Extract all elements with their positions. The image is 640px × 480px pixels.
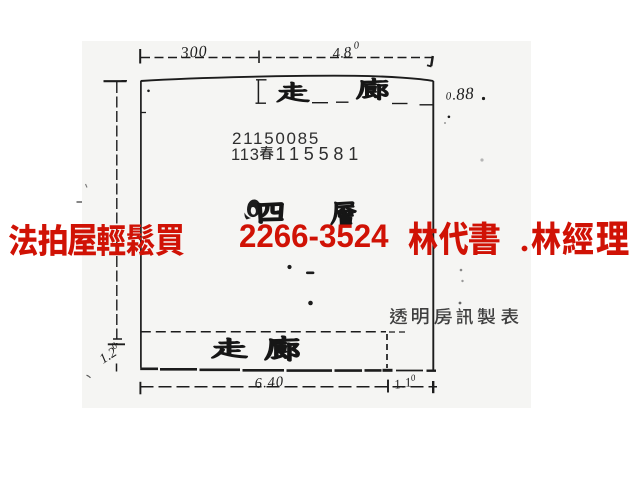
svg-text:4.8: 4.8: [332, 45, 353, 63]
svg-text:88: 88: [455, 84, 474, 104]
svg-text:300: 300: [179, 43, 208, 62]
svg-text:2266-3524: 2266-3524: [239, 218, 389, 254]
svg-text:115581: 115581: [276, 144, 364, 164]
svg-text:113: 113: [231, 146, 260, 164]
svg-text:6.40: 6.40: [254, 374, 284, 392]
